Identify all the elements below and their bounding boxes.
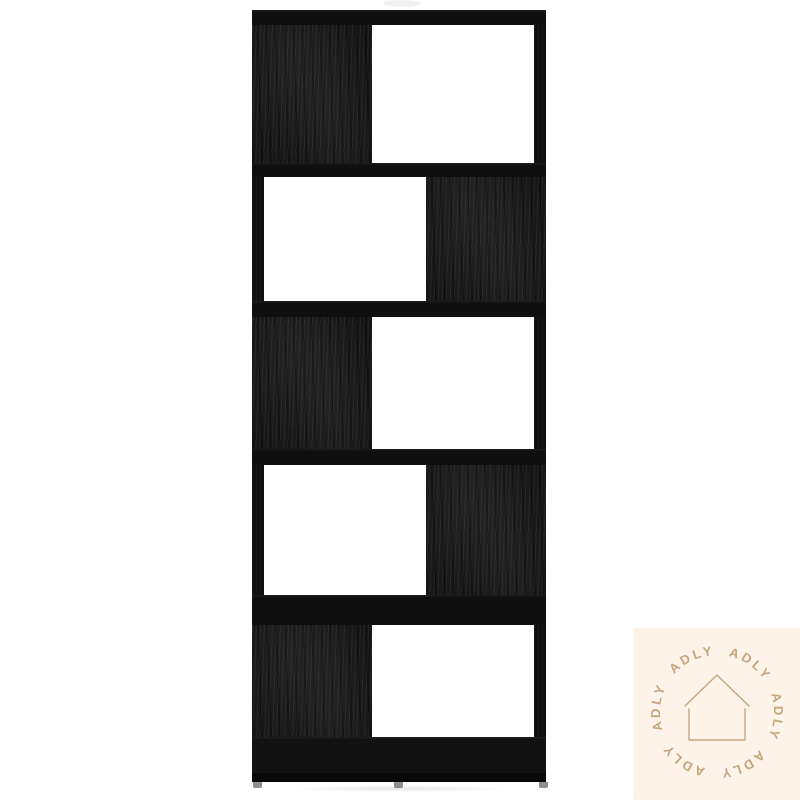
- watermark-badge: ADLY ADLY ADLY ADLY ADLY ADLY: [633, 628, 800, 800]
- tier-1-panel: [252, 25, 372, 163]
- bookcase-top-board: [252, 10, 546, 25]
- tier-3-right-post: [534, 317, 546, 449]
- tier-1-opening: [372, 25, 534, 163]
- bookcase-tier-3: [252, 317, 546, 449]
- shelf-board-2: [252, 301, 546, 317]
- watermark-graphic: ADLY ADLY ADLY ADLY ADLY ADLY: [639, 634, 795, 790]
- tier-1-right-post: [534, 25, 546, 163]
- bookcase-base: [252, 737, 546, 782]
- shelf-board-3: [252, 449, 546, 465]
- bookcase-tier-4: [252, 465, 546, 595]
- tier-3-opening: [372, 317, 534, 449]
- tier-2-opening: [264, 177, 426, 301]
- shelf-board-4: [252, 595, 546, 625]
- watermark-ring-text: ADLY: [723, 640, 777, 687]
- product-photo: ADLY ADLY ADLY ADLY ADLY ADLY: [0, 0, 800, 800]
- tier-3-panel: [252, 317, 372, 449]
- tier-4-left-post: [252, 465, 264, 595]
- shelf-board-1: [252, 163, 546, 177]
- watermark-ring-text: ADLY: [712, 735, 770, 790]
- bookcase-tier-5: [252, 625, 546, 737]
- tier-5-right-post: [534, 625, 546, 737]
- floor-shadow: [252, 786, 546, 795]
- watermark-ring-text: ADLY: [746, 685, 794, 746]
- tier-2-left-post: [252, 177, 264, 301]
- tier-5-panel: [252, 625, 372, 737]
- tier-4-panel: [426, 465, 546, 595]
- house-icon: [685, 675, 749, 740]
- watermark-ring-text: ADLY: [664, 634, 722, 689]
- bookcase-tier-1: [252, 25, 546, 163]
- tier-2-panel: [426, 177, 546, 301]
- bookcase: [252, 10, 546, 782]
- watermark-ring-text: ADLY: [656, 737, 710, 784]
- tier-5-opening: [372, 625, 534, 737]
- watermark-ring-text: ADLY: [639, 678, 687, 739]
- watermark-text-ring: ADLY ADLY ADLY ADLY ADLY ADLY: [639, 634, 795, 790]
- tier-4-opening: [264, 465, 426, 595]
- bookcase-tier-2: [252, 177, 546, 301]
- photo-smudge: [383, 0, 421, 7]
